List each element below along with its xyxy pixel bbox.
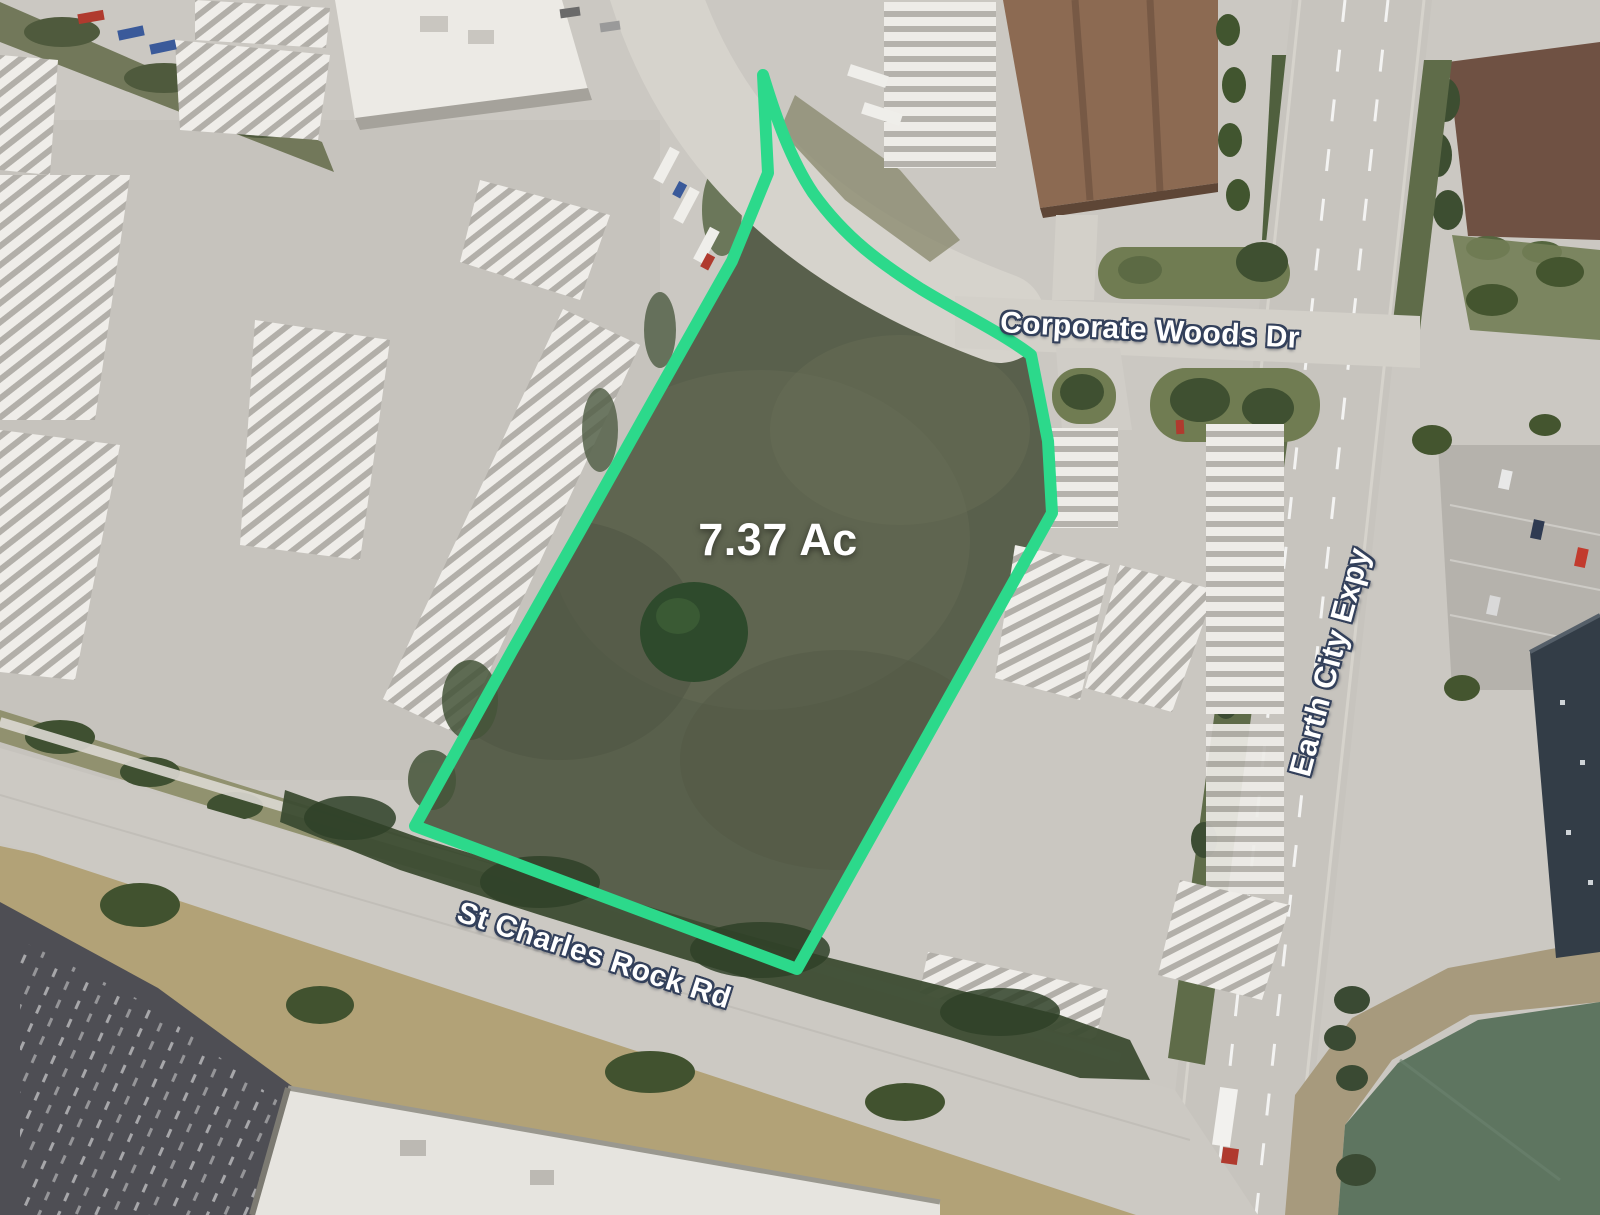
truck-cab — [1221, 1147, 1239, 1165]
dock-trailers — [884, 2, 996, 168]
brown-warehouse — [1003, 0, 1250, 218]
tree-cluster — [640, 582, 748, 682]
aerial-map: 7.37 Ac Corporate Woods Dr Earth City Ex… — [0, 0, 1600, 1215]
parcel-area-label: 7.37 Ac — [698, 514, 857, 566]
